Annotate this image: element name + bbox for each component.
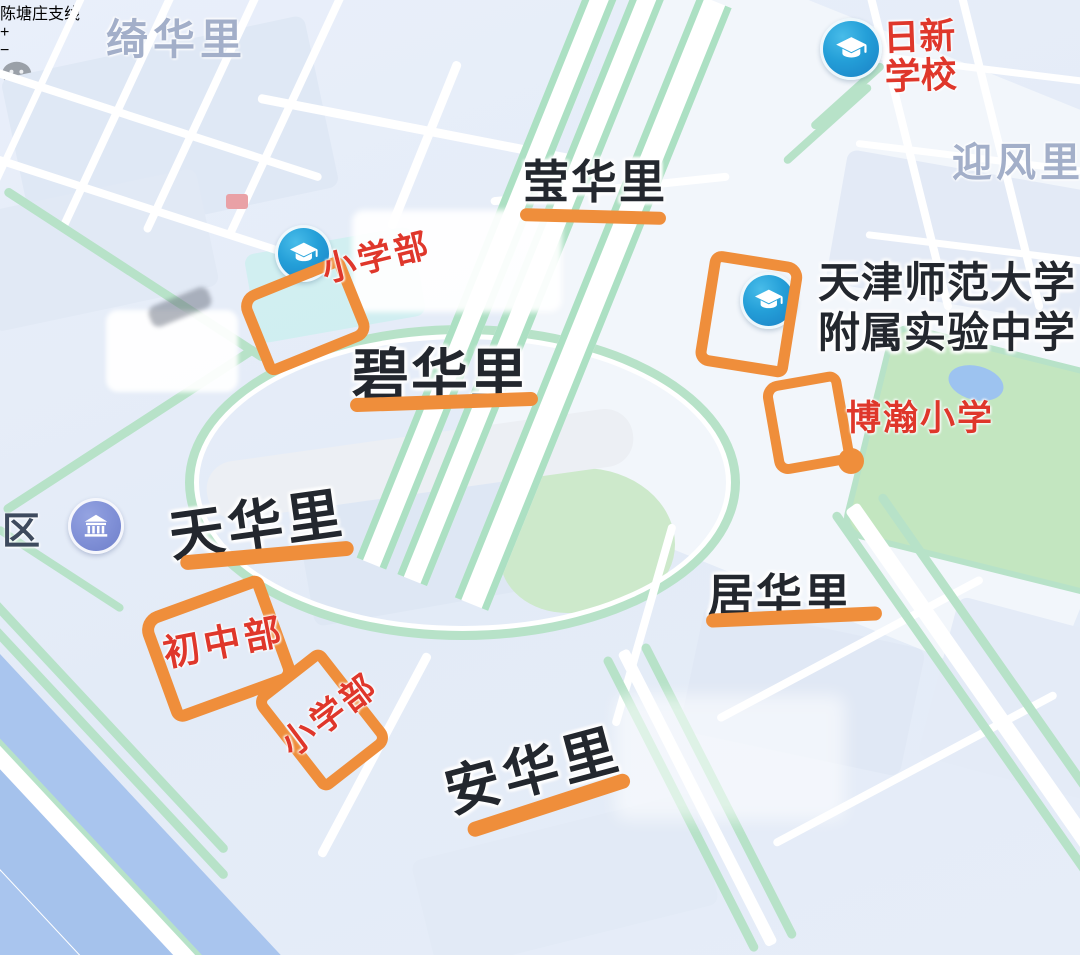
area-label-yinghuali: 莹华里 [523,146,667,212]
school-label-bohan[interactable]: 博瀚小学 [846,390,994,441]
school-label-rixin-line1: 日新 [883,17,956,58]
area-label-district: 区 [2,500,40,555]
graduation-cap-icon [834,32,869,67]
white-patch [106,310,238,392]
school-label-rixin[interactable]: 日新 学校 [883,17,958,97]
annotation-blob [838,448,864,474]
map-canvas[interactable]: 绮华里 迎风里 区 陈塘庄支线 莹华里 碧华里 天津师范大学 附属实验中学 天华… [0,0,1080,955]
white-patch [615,695,845,820]
school-label-affiliated-line2: 附属实验中学 [818,308,1076,358]
school-label-affiliated-line1: 天津师范大学 [818,258,1076,308]
smudge [226,194,248,209]
annotation-rect-affiliated [694,249,805,378]
area-label-yingfengli: 迎风里 [952,130,1080,188]
zoom-out-label: − [0,42,9,59]
area-label-qihuali: 绮华里 [106,6,247,67]
bank-building-icon [81,511,111,541]
civic-building-icon[interactable] [68,498,124,554]
school-label-affiliated[interactable]: 天津师范大学 附属实验中学 [818,258,1076,357]
zoom-in-label: + [0,24,9,41]
school-label-rixin-line2: 学校 [884,56,957,97]
school-icon-rixin[interactable] [820,18,882,80]
